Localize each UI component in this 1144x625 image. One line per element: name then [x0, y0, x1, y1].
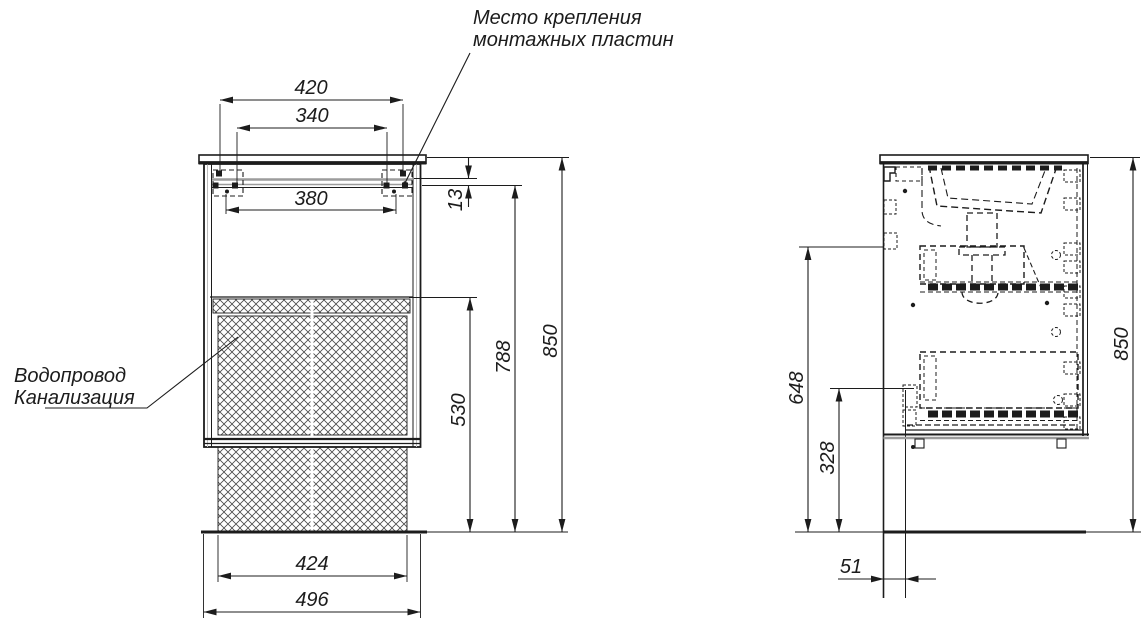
dim-530-label: 530	[448, 393, 470, 426]
dim-424: 424	[218, 535, 407, 582]
dim-51: 51	[838, 556, 936, 579]
side-foot-left	[915, 439, 924, 448]
dim-788-label: 788	[493, 340, 515, 373]
dim-13: 13	[414, 158, 477, 211]
hatch-center-seam	[311, 300, 314, 531]
callout-mounting-leader-dot	[403, 181, 407, 185]
side-countertop	[880, 155, 1088, 164]
dim-850-side-label: 850	[1111, 327, 1133, 360]
callout-mounting-leader-line	[405, 53, 470, 183]
dim-328: 328	[817, 389, 914, 533]
washbasin-hidden-outline	[922, 166, 1057, 226]
dim-380: 380	[226, 188, 396, 214]
callout-plumbing-line1: Водопровод	[14, 365, 126, 387]
dim-380-label: 380	[294, 188, 327, 210]
callout-plumbing-line2: Канализация	[14, 387, 135, 409]
dim-850-side: 850	[1090, 158, 1140, 533]
dim-328-label: 328	[817, 441, 839, 474]
rear-mounting-rails	[212, 180, 413, 188]
side-view	[795, 155, 1141, 598]
front-countertop	[199, 155, 426, 164]
dim-340-label: 340	[295, 105, 328, 127]
mounting-plate-left	[213, 170, 244, 196]
side-view-dimensions: 648 328 850 51	[786, 158, 1140, 580]
dim-51-label: 51	[840, 556, 862, 578]
callout-mounting-line1: Место крепления	[473, 7, 642, 29]
plumbing-hatch-area	[213, 299, 410, 532]
dim-424-label: 424	[295, 553, 328, 575]
siphon-trap-bell	[962, 292, 998, 303]
callout-mounting-line2: монтажных пластин	[473, 29, 674, 51]
vanity-installation-drawing: 420 340 380 13 530 788	[0, 0, 1144, 625]
mounting-plate-right	[382, 170, 412, 196]
dim-340: 340	[237, 105, 387, 184]
dim-648: 648	[786, 247, 884, 532]
dim-496-label: 496	[295, 589, 329, 611]
side-wall-bracket	[884, 167, 1062, 193]
dim-850-front-label: 850	[540, 324, 562, 357]
side-screw-dots	[911, 301, 1049, 449]
dim-420-label: 420	[294, 77, 327, 99]
side-foot-right	[1057, 439, 1066, 448]
side-panel-clips	[884, 168, 1080, 430]
technical-drawing-canvas: 420 340 380 13 530 788	[0, 0, 1144, 625]
dim-530: 530	[409, 298, 477, 533]
lower-drawer-hidden	[907, 352, 1080, 425]
callout-mounting-plates: Место крепления монтажных пластин	[403, 7, 673, 185]
dim-788: 788	[422, 186, 522, 533]
dim-13-label: 13	[445, 189, 467, 211]
dim-648-label: 648	[786, 371, 808, 404]
upper-drawer-hidden	[920, 246, 1080, 292]
